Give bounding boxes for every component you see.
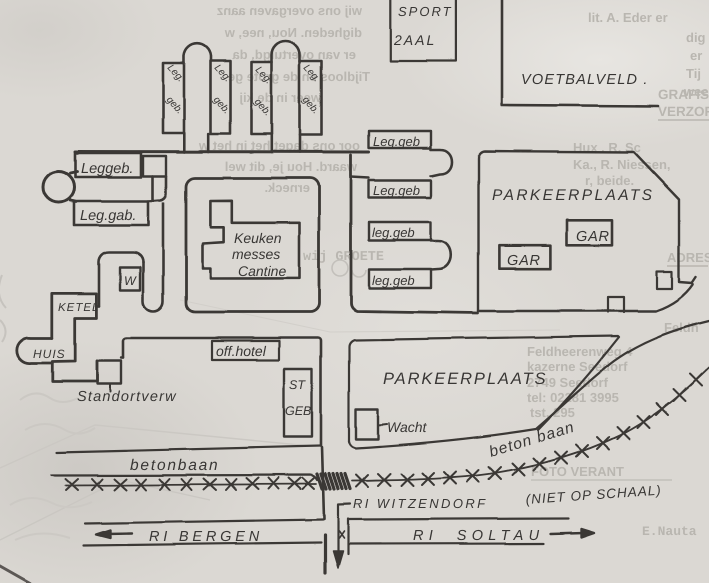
svg-text:Leg.geb: Leg.geb <box>373 134 420 149</box>
svg-text:Feldheerenweg 4: Feldheerenweg 4 <box>527 344 633 359</box>
svg-text:W: W <box>124 274 137 288</box>
svg-text:PARKEERPLAATS: PARKEERPLAATS <box>492 187 654 204</box>
svg-text:VOETBALVELD .: VOETBALVELD . <box>521 72 649 88</box>
svg-text:HUIS: HUIS <box>33 347 66 361</box>
svg-text:er: er <box>690 48 702 63</box>
svg-text:digheden. Nou, nee, w: digheden. Nou, nee, w <box>224 25 362 40</box>
svg-text:GRAFISCHE: GRAFISCHE <box>658 87 709 102</box>
svg-text:ADRES: ADRES <box>667 250 709 265</box>
svg-text:2AAL: 2AAL <box>393 32 436 48</box>
svg-text:GAR: GAR <box>507 253 541 269</box>
svg-text:RI WITZENDORF: RI WITZENDORF <box>353 496 487 511</box>
svg-text:er van overtuigd, da: er van overtuigd, da <box>232 47 356 62</box>
svg-text:messes: messes <box>232 246 280 262</box>
svg-text:Cantine: Cantine <box>238 263 286 279</box>
svg-text:lit. A. Eder er: lit. A. Eder er <box>588 10 668 25</box>
svg-text:waard. Hou je, dit wel: waard. Hou je, dit wel <box>225 159 358 174</box>
svg-text:Ka., R. Niessen,: Ka., R. Niessen, <box>573 157 671 172</box>
svg-text:Keuken: Keuken <box>234 230 282 246</box>
svg-text:dig: dig <box>686 30 706 45</box>
svg-text:r, beide.: r, beide. <box>585 173 634 188</box>
svg-text:Wacht: Wacht <box>387 419 428 435</box>
svg-text:SPORT: SPORT <box>398 4 453 19</box>
svg-text:Leg.geb: Leg.geb <box>373 183 420 198</box>
svg-text:betonbaan: betonbaan <box>130 457 219 474</box>
svg-text:Leg.gab.: Leg.gab. <box>80 208 136 224</box>
svg-text:Tij: Tij <box>686 66 701 81</box>
svg-text:leg.geb: leg.geb <box>372 273 415 288</box>
svg-text:GEB: GEB <box>285 404 311 418</box>
svg-text:RI BERGEN: RI BERGEN <box>149 529 263 545</box>
svg-text:Standortverw: Standortverw <box>77 389 177 405</box>
svg-text:VERZORGING: VERZORGING <box>658 104 709 119</box>
svg-text:leg.geb: leg.geb <box>372 225 415 240</box>
svg-text:wij ons overgaven aanz: wij ons overgaven aanz <box>216 3 363 18</box>
svg-text:erneck.: erneck. <box>264 180 310 195</box>
svg-text:FOTO VERANT: FOTO VERANT <box>531 464 624 479</box>
svg-text:off.hotel: off.hotel <box>216 343 267 359</box>
svg-text:RI SOLTAU: RI SOLTAU <box>413 528 544 544</box>
svg-text:GAR: GAR <box>576 229 610 245</box>
svg-text:tst. 295: tst. 295 <box>530 405 575 420</box>
svg-text:E.Nauta: E.Nauta <box>642 524 697 539</box>
svg-text:wij GROETE: wij GROETE <box>303 250 384 265</box>
svg-text:KETEL: KETEL <box>58 302 99 314</box>
svg-text:Leggeb.: Leggeb. <box>81 161 133 177</box>
svg-text:PARKEERPLAATS: PARKEERPLAATS <box>383 370 547 388</box>
svg-text:ST: ST <box>289 378 306 392</box>
